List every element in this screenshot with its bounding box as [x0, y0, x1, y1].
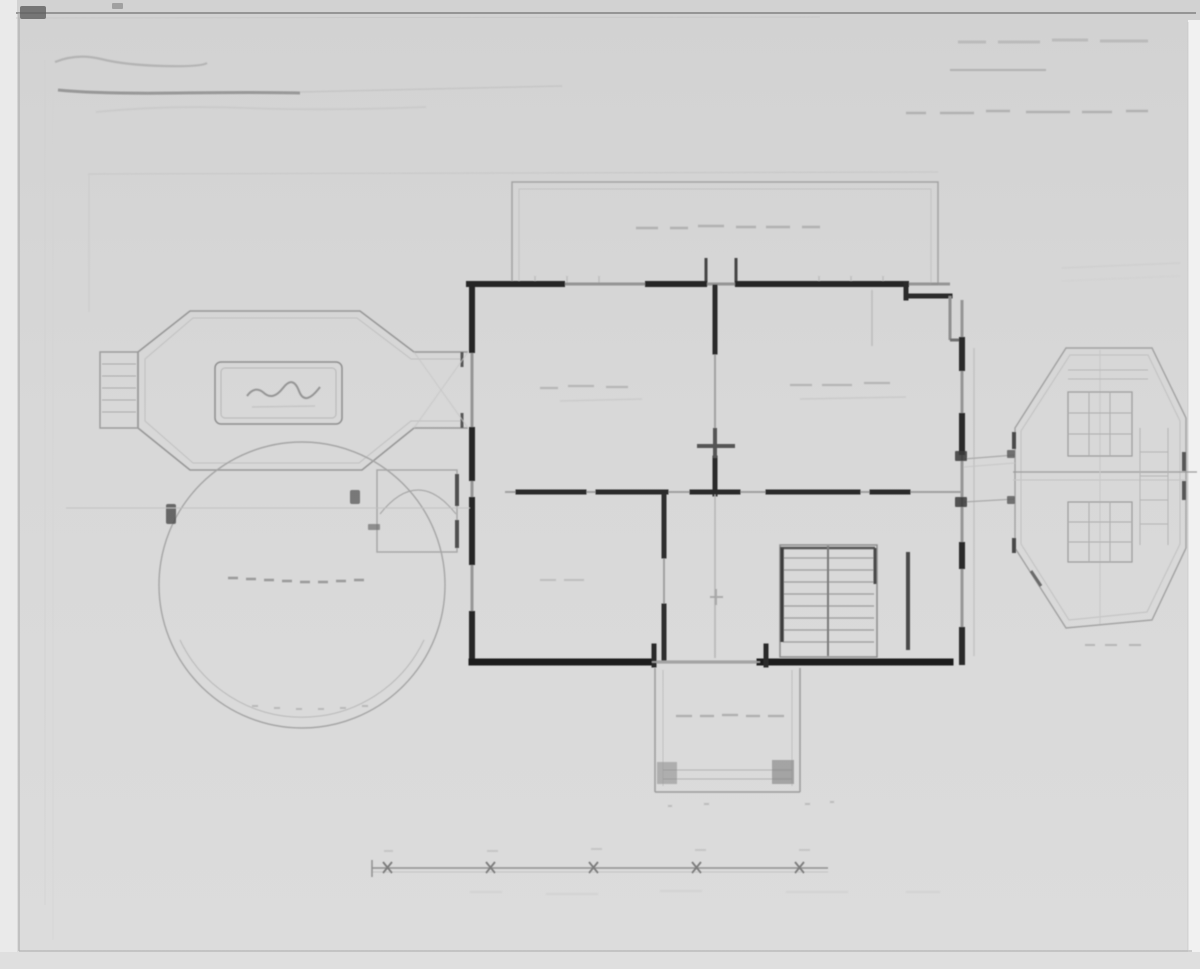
- vestibule-jamb-bl: [955, 497, 967, 507]
- corner-smudge-mark: [20, 6, 46, 19]
- vestibule-jamb-tr: [1007, 450, 1015, 458]
- round-veranda-post-mark-3: [368, 524, 380, 530]
- south-porch-pier-left: [657, 762, 677, 784]
- vestibule-jamb-tl: [955, 451, 967, 461]
- south-porch-pier-right: [772, 760, 794, 784]
- round-veranda-post-mark-2: [350, 490, 360, 504]
- scanned-drawing-page: [0, 0, 1200, 969]
- paper-left-strip: [0, 0, 17, 969]
- top-edge-smudge-mark: [112, 3, 123, 9]
- paper-bottom-strip: [0, 952, 1200, 969]
- paper-right-strip: [1188, 20, 1200, 958]
- paper-sheet-tint: [0, 0, 1200, 969]
- paper-layer: [0, 0, 1200, 969]
- vestibule-jamb-br: [1007, 496, 1015, 504]
- floor-plan-drawing: [0, 0, 1200, 969]
- round-veranda-post-mark-1: [166, 504, 176, 524]
